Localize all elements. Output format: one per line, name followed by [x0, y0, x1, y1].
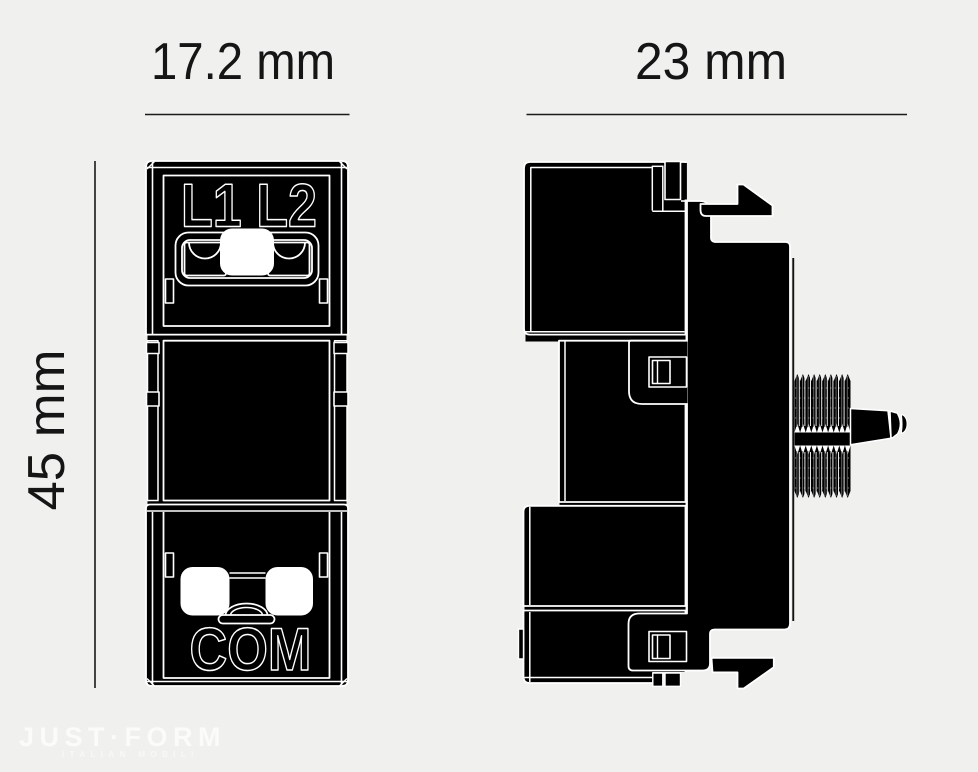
svg-text:ITALIAN MOBILI: ITALIAN MOBILI: [62, 750, 199, 759]
svg-text:45 mm: 45 mm: [18, 350, 76, 511]
svg-text:17.2 mm: 17.2 mm: [151, 33, 335, 91]
svg-text:JUST·FORM: JUST·FORM: [19, 722, 226, 752]
svg-text:23 mm: 23 mm: [635, 33, 787, 91]
svg-text:COM: COM: [190, 616, 312, 683]
